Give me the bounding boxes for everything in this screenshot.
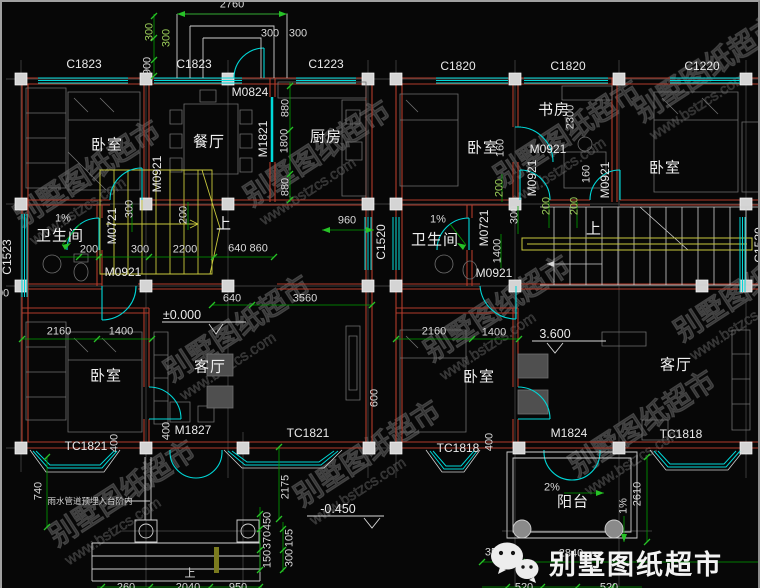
note-label: 雨水管道预埋入台阶内 <box>47 497 132 506</box>
dim-label: 400 <box>485 433 496 451</box>
dim-label: 2300 <box>566 105 577 129</box>
door-label: M0921 <box>151 156 163 193</box>
door-label: M0921 <box>530 143 567 155</box>
window-label: TC1818 <box>660 428 703 440</box>
dim-label: 200 <box>495 179 506 197</box>
level-label: -0.450 <box>320 503 355 516</box>
window-label: C1520 <box>375 224 387 259</box>
dim-label: 2200 <box>173 245 197 256</box>
dim-label: 150 <box>263 550 274 568</box>
dim-label: 260 <box>117 583 135 588</box>
window-label: C1820 <box>550 60 585 72</box>
dim-label: 640 860 <box>228 244 268 255</box>
dim-label: 2040 <box>176 583 200 588</box>
dim-label: 200 <box>80 245 98 256</box>
door-label: M1827 <box>175 424 212 436</box>
door-label: M0721 <box>478 210 490 247</box>
level-label: 3.600 <box>539 328 570 341</box>
wechat-icon <box>488 540 542 584</box>
door-label: M0721 <box>106 208 118 245</box>
dim-label: 1400 <box>109 327 133 338</box>
dim-label: 3560 <box>293 294 317 305</box>
dim-label: 300 <box>162 29 173 47</box>
window-label: C1220 <box>684 60 719 72</box>
slope-label: 1% <box>55 214 71 225</box>
door-label: M0921 <box>599 162 611 199</box>
window-label: C1823 <box>176 58 211 70</box>
room-label: 卫生间 <box>411 233 459 248</box>
door-label: M1821 <box>257 121 269 158</box>
dim-label: 300 <box>289 29 307 40</box>
dim-label: 640 <box>223 294 241 305</box>
dim-label: 300 <box>510 206 521 224</box>
door-label: M0921 <box>105 266 142 278</box>
dim-label: 200 <box>542 197 553 215</box>
stairs-direction-label: 上 <box>185 569 196 580</box>
window-label: C1820 <box>440 60 475 72</box>
room-label: 客厅 <box>194 360 226 375</box>
dim-label: 105 <box>285 529 296 547</box>
dim-label: 880 <box>281 178 292 196</box>
room-label: 卧室 <box>649 161 681 176</box>
dim-label: 370 <box>263 531 274 549</box>
room-label: 卧室 <box>90 369 122 384</box>
stair-handrail <box>522 238 752 250</box>
stairs-direction-label: 上 <box>216 217 232 232</box>
brand-logo-text: 别墅图纸超市 <box>549 543 723 582</box>
window-label: C1223 <box>308 58 343 70</box>
dim-label: 200 <box>570 197 581 215</box>
dim-label: 160 <box>496 139 507 157</box>
door-label: M0921 <box>526 160 538 197</box>
dim-label: 2760 <box>220 0 244 11</box>
dim-label: 2175 <box>281 475 292 499</box>
door-label: M0824 <box>232 86 269 98</box>
slope-label: 1% <box>619 498 630 514</box>
level-label: ±0.000 <box>163 309 201 322</box>
dim-label: 600 <box>370 389 381 407</box>
room-label: 餐厅 <box>193 135 225 150</box>
cad-floor-plan-screenshot: 别墅图纸超市www.bstzcs.com 别墅图纸超市www.bstzcs.co… <box>0 0 760 588</box>
window-label: TC1821 <box>65 440 108 452</box>
dim-label: 400 <box>110 434 121 452</box>
dim-label: 200 <box>179 206 190 224</box>
window-label: TC1818 <box>437 442 480 454</box>
window-label: TC1821 <box>287 427 330 439</box>
dim-label: 300 <box>285 549 296 567</box>
dim-label: 900 <box>143 57 154 75</box>
stairs-direction-label: 上 <box>586 222 602 237</box>
room-label: 卧室 <box>463 370 495 385</box>
dim-label: 450 <box>263 512 274 530</box>
dim-label: 2610 <box>633 482 644 506</box>
room-label: 阳台 <box>557 495 589 510</box>
room-label: 卧室 <box>91 138 123 153</box>
window-label: C1523 <box>1 239 13 274</box>
dim-label: 300 <box>125 200 136 218</box>
slope-label: 2% <box>544 483 560 494</box>
dim-label: 160 <box>582 165 593 183</box>
dim-label: 880 <box>281 99 292 117</box>
dim-label: 1400 <box>493 239 504 263</box>
dim-label: 1800 <box>280 129 291 153</box>
dim-label: 300 <box>145 23 156 41</box>
dim-label: 300 <box>0 289 9 300</box>
window-label: C1520 <box>753 227 760 262</box>
dim-label: 950 <box>229 583 247 588</box>
dim-label: 1400 <box>482 328 506 339</box>
brand-logo: 别墅图纸超市 <box>488 540 723 584</box>
slope-label: 1% <box>430 215 446 226</box>
dim-label: 300 <box>131 245 149 256</box>
room-label: 客厅 <box>660 358 692 373</box>
room-label: 厨房 <box>310 130 342 145</box>
dim-label: 400 <box>162 422 173 440</box>
door-label: M0921 <box>476 267 513 279</box>
window-label: C1823 <box>66 58 101 70</box>
dim-label: 300 <box>261 29 279 40</box>
door-label: M1824 <box>551 427 588 439</box>
dim-label: 740 <box>34 482 45 500</box>
dim-label: 960 <box>338 216 356 227</box>
dim-label: 2160 <box>47 327 71 338</box>
room-label: 卫生间 <box>36 229 84 244</box>
dim-label: 2160 <box>422 327 446 338</box>
